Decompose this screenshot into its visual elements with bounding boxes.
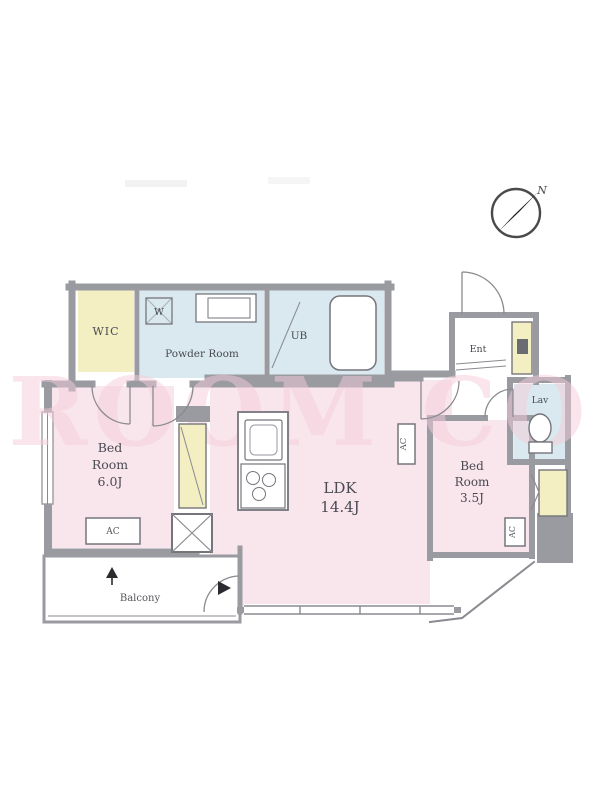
toilet-tank (529, 442, 552, 453)
bedroom1-label-line2: Room (92, 457, 128, 472)
powder-room-label: Powder Room (165, 348, 239, 360)
bath-label: UB (291, 330, 308, 342)
bedroom1-label-line1: Bed (98, 440, 123, 455)
washer-label: W (154, 307, 164, 318)
compass-circle (492, 189, 540, 237)
ldk-label: LDK (323, 479, 357, 497)
ac-label-bedroom1: AC (105, 527, 119, 537)
floor-plan-drawing: ROOM CO (0, 0, 600, 800)
compass-needle (498, 192, 538, 232)
bathtub-icon (330, 296, 376, 370)
ac-label-ldk: AC (399, 438, 409, 452)
door-arc-entry (462, 272, 504, 314)
print-smudge (268, 177, 310, 184)
closet-bedroom2 (539, 470, 567, 516)
watermark-text: ROOM CO (8, 357, 591, 468)
toilet-icon (529, 414, 551, 442)
ac-label-bedroom2: AC (508, 526, 517, 539)
lavatory-label: Lav (532, 396, 549, 406)
entrance-label: Ent (470, 344, 487, 355)
bedroom2-size-label: 3.5J (460, 491, 484, 505)
balcony-floor (44, 556, 240, 622)
compass-icon: N (492, 184, 547, 237)
ldk-size-label: 14.4J (320, 498, 359, 516)
shoe-cabinet-icon (517, 339, 528, 354)
bedroom1-size-label: 6.0J (98, 474, 123, 489)
balcony-label: Balcony (120, 593, 161, 604)
bedroom2-label-line2: Room (455, 475, 490, 489)
wic-label: WIC (92, 325, 119, 338)
compass-north-label: N (536, 184, 547, 197)
floor-plan-page: ROOM CO (0, 0, 600, 800)
bedroom2-label-line1: Bed (460, 459, 484, 473)
wall-corner-mass (537, 513, 573, 563)
print-smudge (125, 180, 187, 187)
